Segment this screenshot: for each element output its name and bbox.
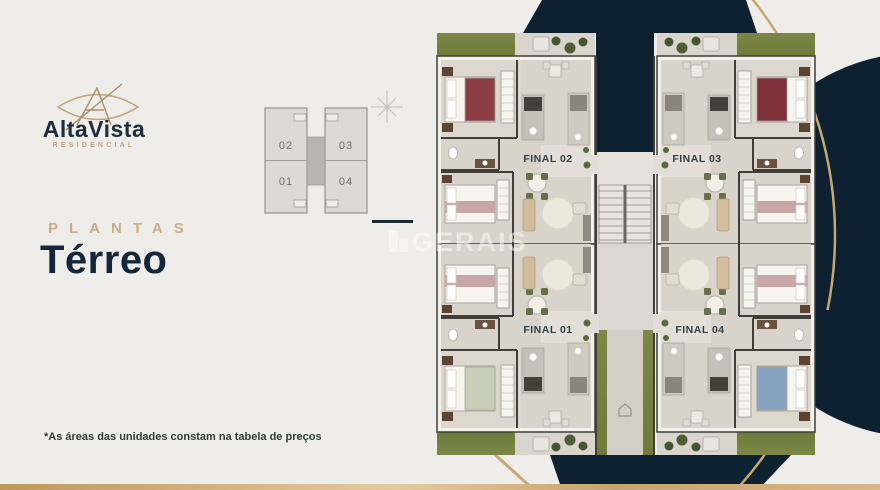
bed-blanket-final-01 bbox=[465, 367, 495, 410]
watermark: GERAIS bbox=[389, 227, 528, 257]
watermark-text: GERAIS bbox=[412, 227, 528, 257]
keyplan: 02 03 01 04 bbox=[265, 91, 413, 223]
keyplan-unit-03: 03 bbox=[339, 140, 353, 152]
page-eyebrow: PLANTAS bbox=[48, 220, 195, 237]
unit-label-final-04: FINAL 04 bbox=[675, 324, 724, 336]
unit-final-03 bbox=[653, 33, 815, 244]
unit-final-02 bbox=[437, 33, 599, 244]
footnote: *As áreas das unidades constam na tabela… bbox=[44, 431, 322, 443]
keyplan-unit-01: 01 bbox=[279, 176, 293, 188]
accent-rule bbox=[372, 220, 413, 223]
keyplan-unit-04: 04 bbox=[339, 176, 353, 188]
bed-blanket-final-03 bbox=[757, 78, 787, 121]
bed-blanket-final-04 bbox=[757, 367, 787, 410]
bed-blanket-final-02 bbox=[465, 78, 495, 121]
unit-label-final-02: FINAL 02 bbox=[523, 153, 572, 165]
unit-final-04 bbox=[653, 244, 815, 455]
walkway bbox=[596, 330, 654, 455]
unit-label-final-03: FINAL 03 bbox=[672, 153, 721, 165]
stairs bbox=[599, 185, 651, 243]
watermark-logo-icon bbox=[389, 231, 408, 252]
brand-subtitle: RESIDENCIAL bbox=[38, 142, 150, 149]
keyplan-unit-02: 02 bbox=[279, 140, 293, 152]
unit-label-final-01: FINAL 01 bbox=[523, 324, 572, 336]
page-title: Térreo bbox=[40, 238, 168, 283]
compass-star-icon bbox=[371, 91, 403, 123]
brand-name: AltaVista bbox=[38, 116, 150, 143]
bottom-gold-band bbox=[0, 484, 880, 490]
unit-final-01 bbox=[437, 244, 599, 455]
